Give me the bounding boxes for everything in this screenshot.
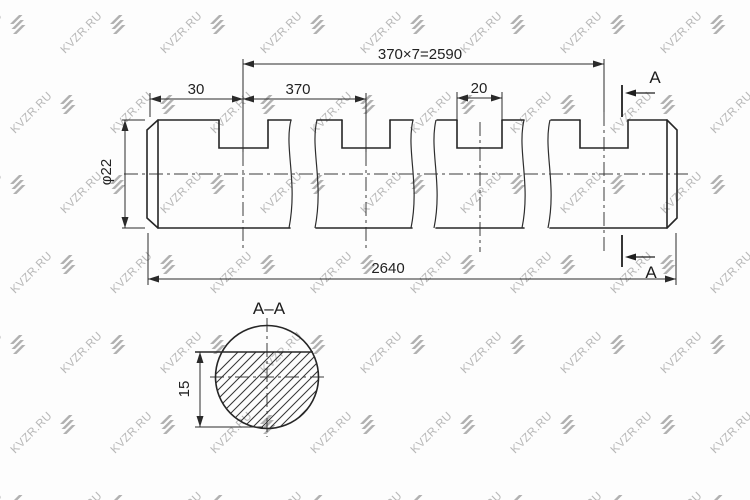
watermark-text: KVZR.RU <box>609 410 655 456</box>
watermark-text: KVZR.RU <box>409 90 455 136</box>
watermark-logo-icon <box>610 15 626 34</box>
watermark-logo-icon <box>510 15 526 34</box>
watermark-logo-icon <box>710 335 726 354</box>
watermark-logo-icon <box>210 495 226 500</box>
watermark-text: KVZR.RU <box>609 90 655 136</box>
watermark-logo-icon <box>10 175 26 194</box>
watermark-logo-icon <box>110 15 126 34</box>
watermark-logo-icon <box>210 175 226 194</box>
watermark-text: KVZR.RU <box>459 330 505 376</box>
watermark-logo-icon <box>560 255 576 274</box>
watermark-logo-icon <box>10 495 26 500</box>
watermark-text: KVZR.RU <box>209 410 255 456</box>
watermark-text: KVZR.RU <box>259 170 305 216</box>
watermark-logo-icon <box>310 15 326 34</box>
watermark-logo-icon <box>410 335 426 354</box>
watermark-text: KVZR.RU <box>509 90 555 136</box>
watermark-text: KVZR.RU <box>0 330 5 376</box>
watermark-logo-icon <box>160 415 176 434</box>
watermark-logo-icon <box>560 95 576 114</box>
watermark-text: KVZR.RU <box>709 410 750 456</box>
watermark-text: KVZR.RU <box>159 170 205 216</box>
section-arrow-bottom-label: A <box>645 263 657 282</box>
watermark-text: KVZR.RU <box>509 410 555 456</box>
watermark-logo-icon <box>210 15 226 34</box>
watermark-text: KVZR.RU <box>559 170 605 216</box>
dim-offset-left-label: 30 <box>188 81 205 98</box>
watermark-logo-icon <box>360 415 376 434</box>
section-view: A–A 15 <box>130 299 436 460</box>
watermark-text: KVZR.RU <box>0 170 5 216</box>
watermark-logo-icon <box>660 415 676 434</box>
watermark-logo-icon <box>260 95 276 114</box>
watermark-logo-icon <box>610 175 626 194</box>
watermark-text: KVZR.RU <box>59 10 105 56</box>
watermark-text: KVZR.RU <box>259 10 305 56</box>
watermark-text: KVZR.RU <box>9 410 55 456</box>
watermark-text: KVZR.RU <box>559 490 605 500</box>
watermark-text: KVZR.RU <box>659 170 705 216</box>
watermark-logo-icon <box>310 495 326 500</box>
watermark-text: KVZR.RU <box>459 170 505 216</box>
watermark-logo-icon <box>60 415 76 434</box>
watermark-logo-icon <box>510 175 526 194</box>
watermark-text: KVZR.RU <box>659 10 705 56</box>
dim-pitch-total-label: 370×7=2590 <box>378 46 462 63</box>
watermark-logo-icon <box>60 95 76 114</box>
hatch-line <box>193 352 301 460</box>
hatch-line <box>292 352 400 460</box>
watermark-logo-icon <box>410 175 426 194</box>
watermark-text: KVZR.RU <box>659 330 705 376</box>
dim-slot-width-label: 20 <box>471 80 488 97</box>
watermark-logo-icon <box>710 495 726 500</box>
watermark-logo-icon <box>610 495 626 500</box>
watermark-text: KVZR.RU <box>709 90 750 136</box>
watermark-text: KVZR.RU <box>409 410 455 456</box>
watermark-logo-icon <box>160 255 176 274</box>
section-arrow-top-label: A <box>649 68 661 87</box>
watermark-text: KVZR.RU <box>259 490 305 500</box>
dim-section-height-label: 15 <box>176 381 193 398</box>
hatch-line <box>139 352 247 460</box>
watermark-text: KVZR.RU <box>359 330 405 376</box>
section-title: A–A <box>253 299 286 318</box>
center-lines <box>124 112 688 252</box>
watermark-text: KVZR.RU <box>209 90 255 136</box>
watermark-logo-icon <box>260 255 276 274</box>
main-view: 370×7=2590 30 370 20 <box>98 46 688 285</box>
hatch-line <box>238 352 346 460</box>
dim-pitch-label: 370 <box>285 81 310 98</box>
watermark-layer: KVZR.RUKVZR.RUKVZR.RUKVZR.RUKVZR.RUKVZR.… <box>0 10 750 500</box>
section-center-lines <box>210 318 325 437</box>
watermark-logo-icon <box>710 15 726 34</box>
watermark-logo-icon <box>460 255 476 274</box>
watermark-text: KVZR.RU <box>409 250 455 296</box>
dim-diameter-label: φ22 <box>98 159 115 185</box>
drawing-canvas: KVZR.RUKVZR.RUKVZR.RUKVZR.RUKVZR.RUKVZR.… <box>0 0 750 500</box>
watermark-text: KVZR.RU <box>309 250 355 296</box>
watermark-logo-icon <box>110 495 126 500</box>
watermark-logo-icon <box>410 495 426 500</box>
watermark-logo-icon <box>110 335 126 354</box>
watermark-text: KVZR.RU <box>0 490 5 500</box>
watermark-text: KVZR.RU <box>109 410 155 456</box>
watermark-text: KVZR.RU <box>359 490 405 500</box>
watermark-text: KVZR.RU <box>309 410 355 456</box>
watermark-text: KVZR.RU <box>659 490 705 500</box>
watermark-logo-icon <box>410 15 426 34</box>
watermark-text: KVZR.RU <box>559 330 605 376</box>
watermark-logo-icon <box>610 335 626 354</box>
watermark-text: KVZR.RU <box>9 250 55 296</box>
watermark-logo-icon <box>160 95 176 114</box>
watermark-text: KVZR.RU <box>459 490 505 500</box>
dim-overall-length-label: 2640 <box>371 260 404 277</box>
watermark-logo-icon <box>510 495 526 500</box>
watermark-text: KVZR.RU <box>459 10 505 56</box>
watermark-logo-icon <box>10 335 26 354</box>
watermark-text: KVZR.RU <box>559 10 605 56</box>
watermark-text: KVZR.RU <box>9 90 55 136</box>
watermark-logo-icon <box>660 255 676 274</box>
watermark-logo-icon <box>710 175 726 194</box>
watermark-text: KVZR.RU <box>709 250 750 296</box>
watermark-text: KVZR.RU <box>159 490 205 500</box>
section-hatch <box>130 352 436 460</box>
watermark-logo-icon <box>60 255 76 274</box>
watermark-text: KVZR.RU <box>209 250 255 296</box>
watermark-text: KVZR.RU <box>59 490 105 500</box>
watermark-text: KVZR.RU <box>159 330 205 376</box>
technical-drawing: KVZR.RUKVZR.RUKVZR.RUKVZR.RUKVZR.RUKVZR.… <box>0 0 750 500</box>
watermark-text: KVZR.RU <box>159 10 205 56</box>
watermark-logo-icon <box>660 95 676 114</box>
watermark-logo-icon <box>510 335 526 354</box>
watermark-text: KVZR.RU <box>509 250 555 296</box>
watermark-text: KVZR.RU <box>0 10 5 56</box>
watermark-logo-icon <box>560 415 576 434</box>
watermark-text: KVZR.RU <box>59 330 105 376</box>
watermark-logo-icon <box>10 15 26 34</box>
watermark-logo-icon <box>460 415 476 434</box>
